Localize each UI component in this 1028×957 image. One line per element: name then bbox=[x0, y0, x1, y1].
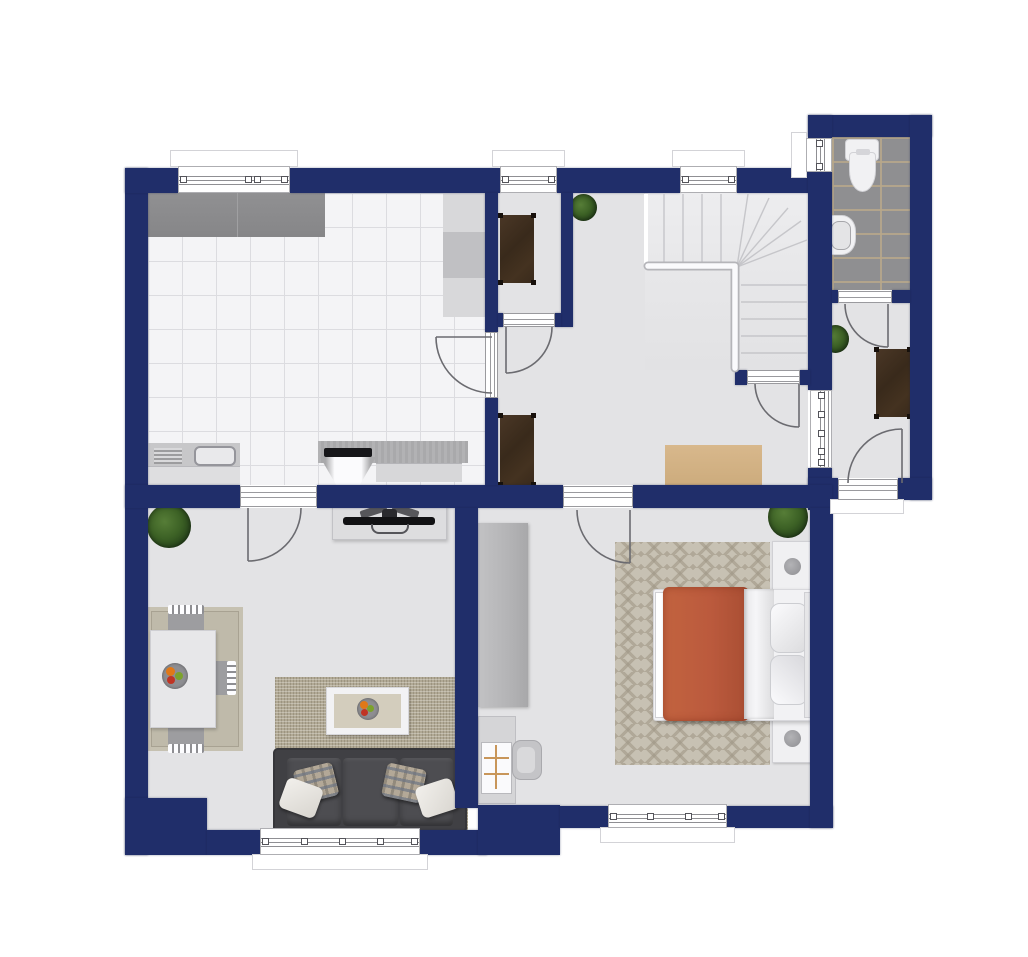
kitchen-fridge-unit bbox=[443, 232, 485, 278]
dining-chair-right-back bbox=[227, 661, 236, 695]
fruit-bowl-dining bbox=[162, 663, 188, 689]
wall-annex-right bbox=[910, 115, 932, 500]
bed-duvet bbox=[663, 587, 749, 721]
drainboard bbox=[154, 448, 182, 464]
counter-seam bbox=[237, 193, 238, 237]
living-room-plant bbox=[147, 504, 191, 548]
kitchen-sink-basin bbox=[194, 446, 236, 466]
hallway-window bbox=[680, 166, 737, 193]
window-outer-sill bbox=[672, 150, 745, 167]
dining-chair-top-back bbox=[168, 605, 204, 614]
wall-top-segment bbox=[125, 168, 178, 193]
bathroom-window bbox=[806, 138, 832, 172]
wall-pantry-right bbox=[561, 193, 573, 327]
hallway-plant bbox=[570, 194, 597, 221]
floorplan-canvas bbox=[0, 0, 1028, 957]
bed-pillow-upper bbox=[770, 603, 808, 653]
wall-bottom-step-block bbox=[478, 805, 560, 855]
bedroom-door-sill bbox=[563, 486, 633, 507]
hall-vestibule-opening bbox=[810, 390, 832, 468]
wall-bathroom-left-upper bbox=[808, 115, 832, 138]
window-outer-sill bbox=[492, 150, 565, 167]
bedroom-window bbox=[608, 804, 727, 828]
bed-pillow-lower bbox=[770, 655, 808, 705]
worktop-cabinet-front bbox=[376, 463, 462, 482]
staircase-area bbox=[645, 193, 808, 370]
wall-right-main bbox=[808, 172, 832, 390]
kitchen-tall-cabinet-lower bbox=[443, 278, 485, 317]
sink-bowl bbox=[831, 221, 851, 250]
pantry-door-sill bbox=[503, 313, 555, 327]
wall-left-exterior bbox=[125, 168, 148, 855]
table-lamp-lower bbox=[784, 730, 801, 747]
wall-top-segment bbox=[290, 168, 500, 193]
wall-bathroom-bottom bbox=[892, 290, 910, 303]
wall-annex-bottom-right bbox=[898, 478, 932, 500]
hallway-runner-rug bbox=[665, 445, 762, 487]
stove-cooktop bbox=[324, 448, 372, 457]
window-outer-sill bbox=[791, 132, 807, 178]
kitchen-door-sill bbox=[485, 332, 498, 398]
desk-shelf bbox=[481, 742, 512, 794]
wall-top-segment bbox=[557, 168, 680, 193]
wall-mid-band bbox=[317, 485, 563, 508]
kitchen-living-door-sill bbox=[240, 486, 317, 507]
window-outer-sill bbox=[600, 827, 735, 843]
kitchen-tall-cabinet-upper bbox=[443, 193, 485, 232]
hallway-side-table bbox=[500, 415, 534, 485]
nightstand-upper bbox=[772, 541, 812, 591]
sink-cabinet-front bbox=[148, 466, 240, 486]
pantry-window bbox=[500, 166, 557, 193]
wall-bottom-bedroom-left bbox=[560, 806, 608, 828]
dining-chair-bottom-back bbox=[168, 744, 204, 753]
wall-bottom-left-block bbox=[125, 798, 207, 855]
tv-stand-outline bbox=[371, 524, 409, 534]
table-lamp-upper bbox=[784, 558, 801, 575]
toilet-seat-hinge bbox=[856, 149, 870, 155]
wall-kitchen-right-lower bbox=[485, 398, 498, 485]
wall-living-bedroom bbox=[455, 508, 478, 808]
wall-bottom-living-left bbox=[207, 830, 260, 855]
wall-pantry-door-stub-right bbox=[555, 313, 561, 327]
entrance-door-sill bbox=[838, 479, 898, 500]
kitchen-counter-top bbox=[148, 193, 325, 237]
pantry-side-table bbox=[500, 215, 534, 283]
living-room-window bbox=[260, 828, 420, 855]
window-outer-sill bbox=[252, 854, 428, 870]
wall-bottom-living-right bbox=[420, 830, 487, 855]
wall-kitchen-right-upper bbox=[485, 193, 498, 332]
bed-folded-sheet bbox=[744, 589, 774, 719]
bathroom-door-sill bbox=[838, 291, 892, 303]
window-outer-sill bbox=[170, 150, 298, 167]
vestibule-desk bbox=[876, 349, 910, 417]
wardrobe bbox=[478, 523, 528, 707]
wall-stair-stub-left bbox=[735, 370, 747, 385]
wall-hall-bedroom bbox=[633, 485, 832, 508]
kitchen-window bbox=[178, 166, 290, 193]
wall-kitchen-living bbox=[125, 485, 240, 508]
fruit-bowl-coffee bbox=[357, 698, 379, 720]
wall-bedroom-right bbox=[810, 508, 833, 828]
wall-stair-stub-right bbox=[800, 370, 810, 385]
stair-door-sill bbox=[747, 370, 800, 384]
desk-chair bbox=[512, 740, 542, 780]
entrance-outer-sill bbox=[830, 499, 904, 514]
